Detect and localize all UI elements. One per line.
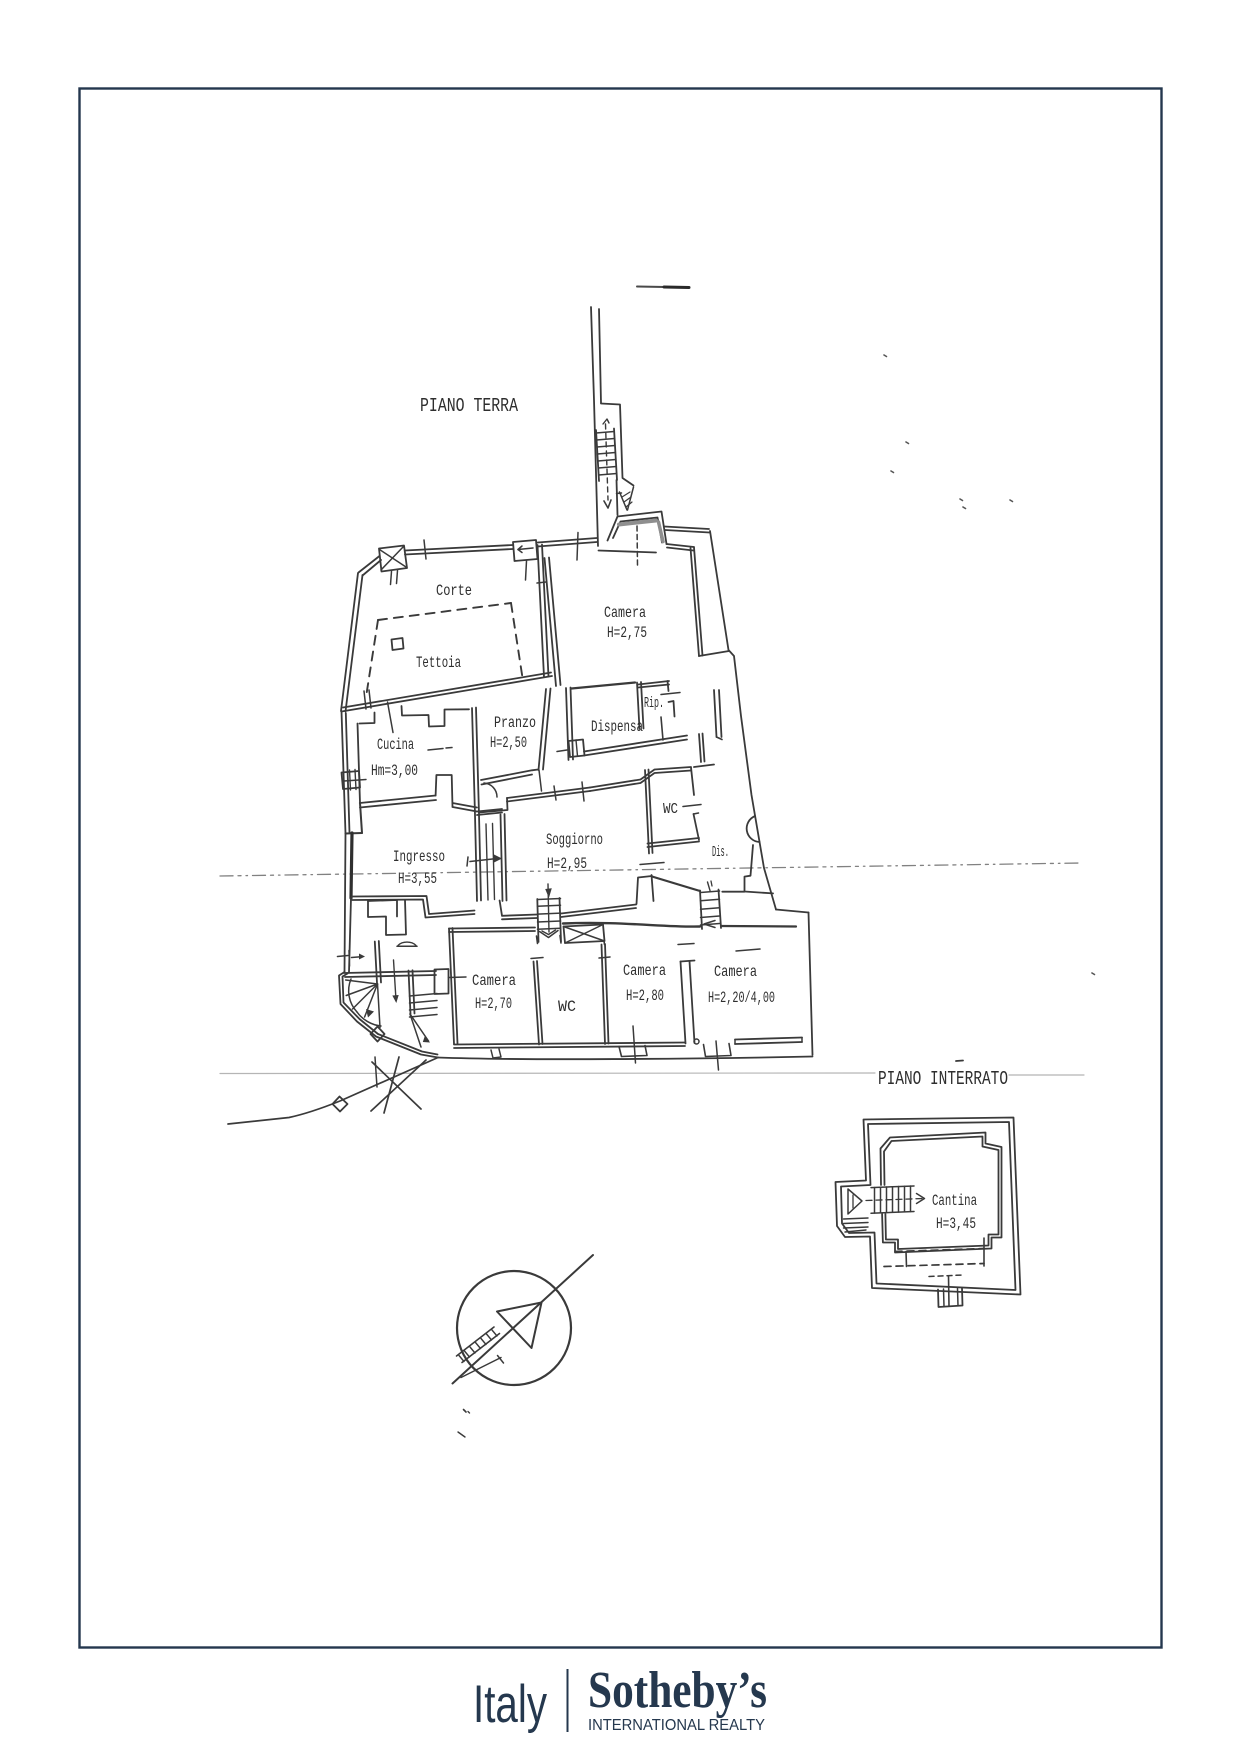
svg-text:Pranzo: Pranzo: [494, 714, 536, 732]
svg-text:INTERNATIONAL REALTY: INTERNATIONAL REALTY: [588, 1717, 765, 1734]
svg-text:Sotheby’s: Sotheby’s: [588, 1662, 767, 1719]
svg-text:H=2,20/4,00: H=2,20/4,00: [708, 989, 775, 1007]
svg-text:Hm=3,00: Hm=3,00: [371, 762, 418, 780]
svg-text:PIANO INTERRATO: PIANO INTERRATO: [878, 1068, 1008, 1090]
svg-text:H=2,70: H=2,70: [475, 995, 512, 1013]
svg-text:Dispensa: Dispensa: [591, 718, 643, 736]
svg-text:H=2,95: H=2,95: [547, 855, 587, 873]
svg-text:Camera: Camera: [604, 604, 646, 622]
svg-text:H=2,50: H=2,50: [490, 734, 527, 752]
svg-text:H=3,45: H=3,45: [936, 1215, 976, 1233]
svg-text:Dis.: Dis.: [712, 844, 729, 861]
svg-text:Cucina: Cucina: [377, 736, 414, 754]
svg-text:Italy: Italy: [473, 1675, 547, 1734]
svg-text:Rip.: Rip.: [644, 695, 664, 712]
svg-text:Corte: Corte: [436, 582, 472, 600]
svg-text:Soggiorno: Soggiorno: [546, 831, 603, 849]
svg-text:H=2,80: H=2,80: [626, 987, 664, 1005]
svg-text:Camera: Camera: [472, 972, 516, 990]
svg-text:Camera: Camera: [714, 963, 757, 981]
svg-text:Camera: Camera: [623, 962, 666, 980]
svg-text:Ingresso: Ingresso: [393, 848, 445, 866]
svg-text:H=2,75: H=2,75: [607, 624, 647, 642]
svg-text:PIANO TERRA: PIANO TERRA: [420, 395, 518, 417]
svg-text:Tettoia: Tettoia: [416, 654, 461, 672]
svg-text:WC: WC: [663, 801, 678, 818]
svg-text:WC: WC: [558, 998, 576, 1016]
svg-text:Cantina: Cantina: [932, 1192, 977, 1210]
svg-text:H=3,55: H=3,55: [398, 870, 437, 888]
